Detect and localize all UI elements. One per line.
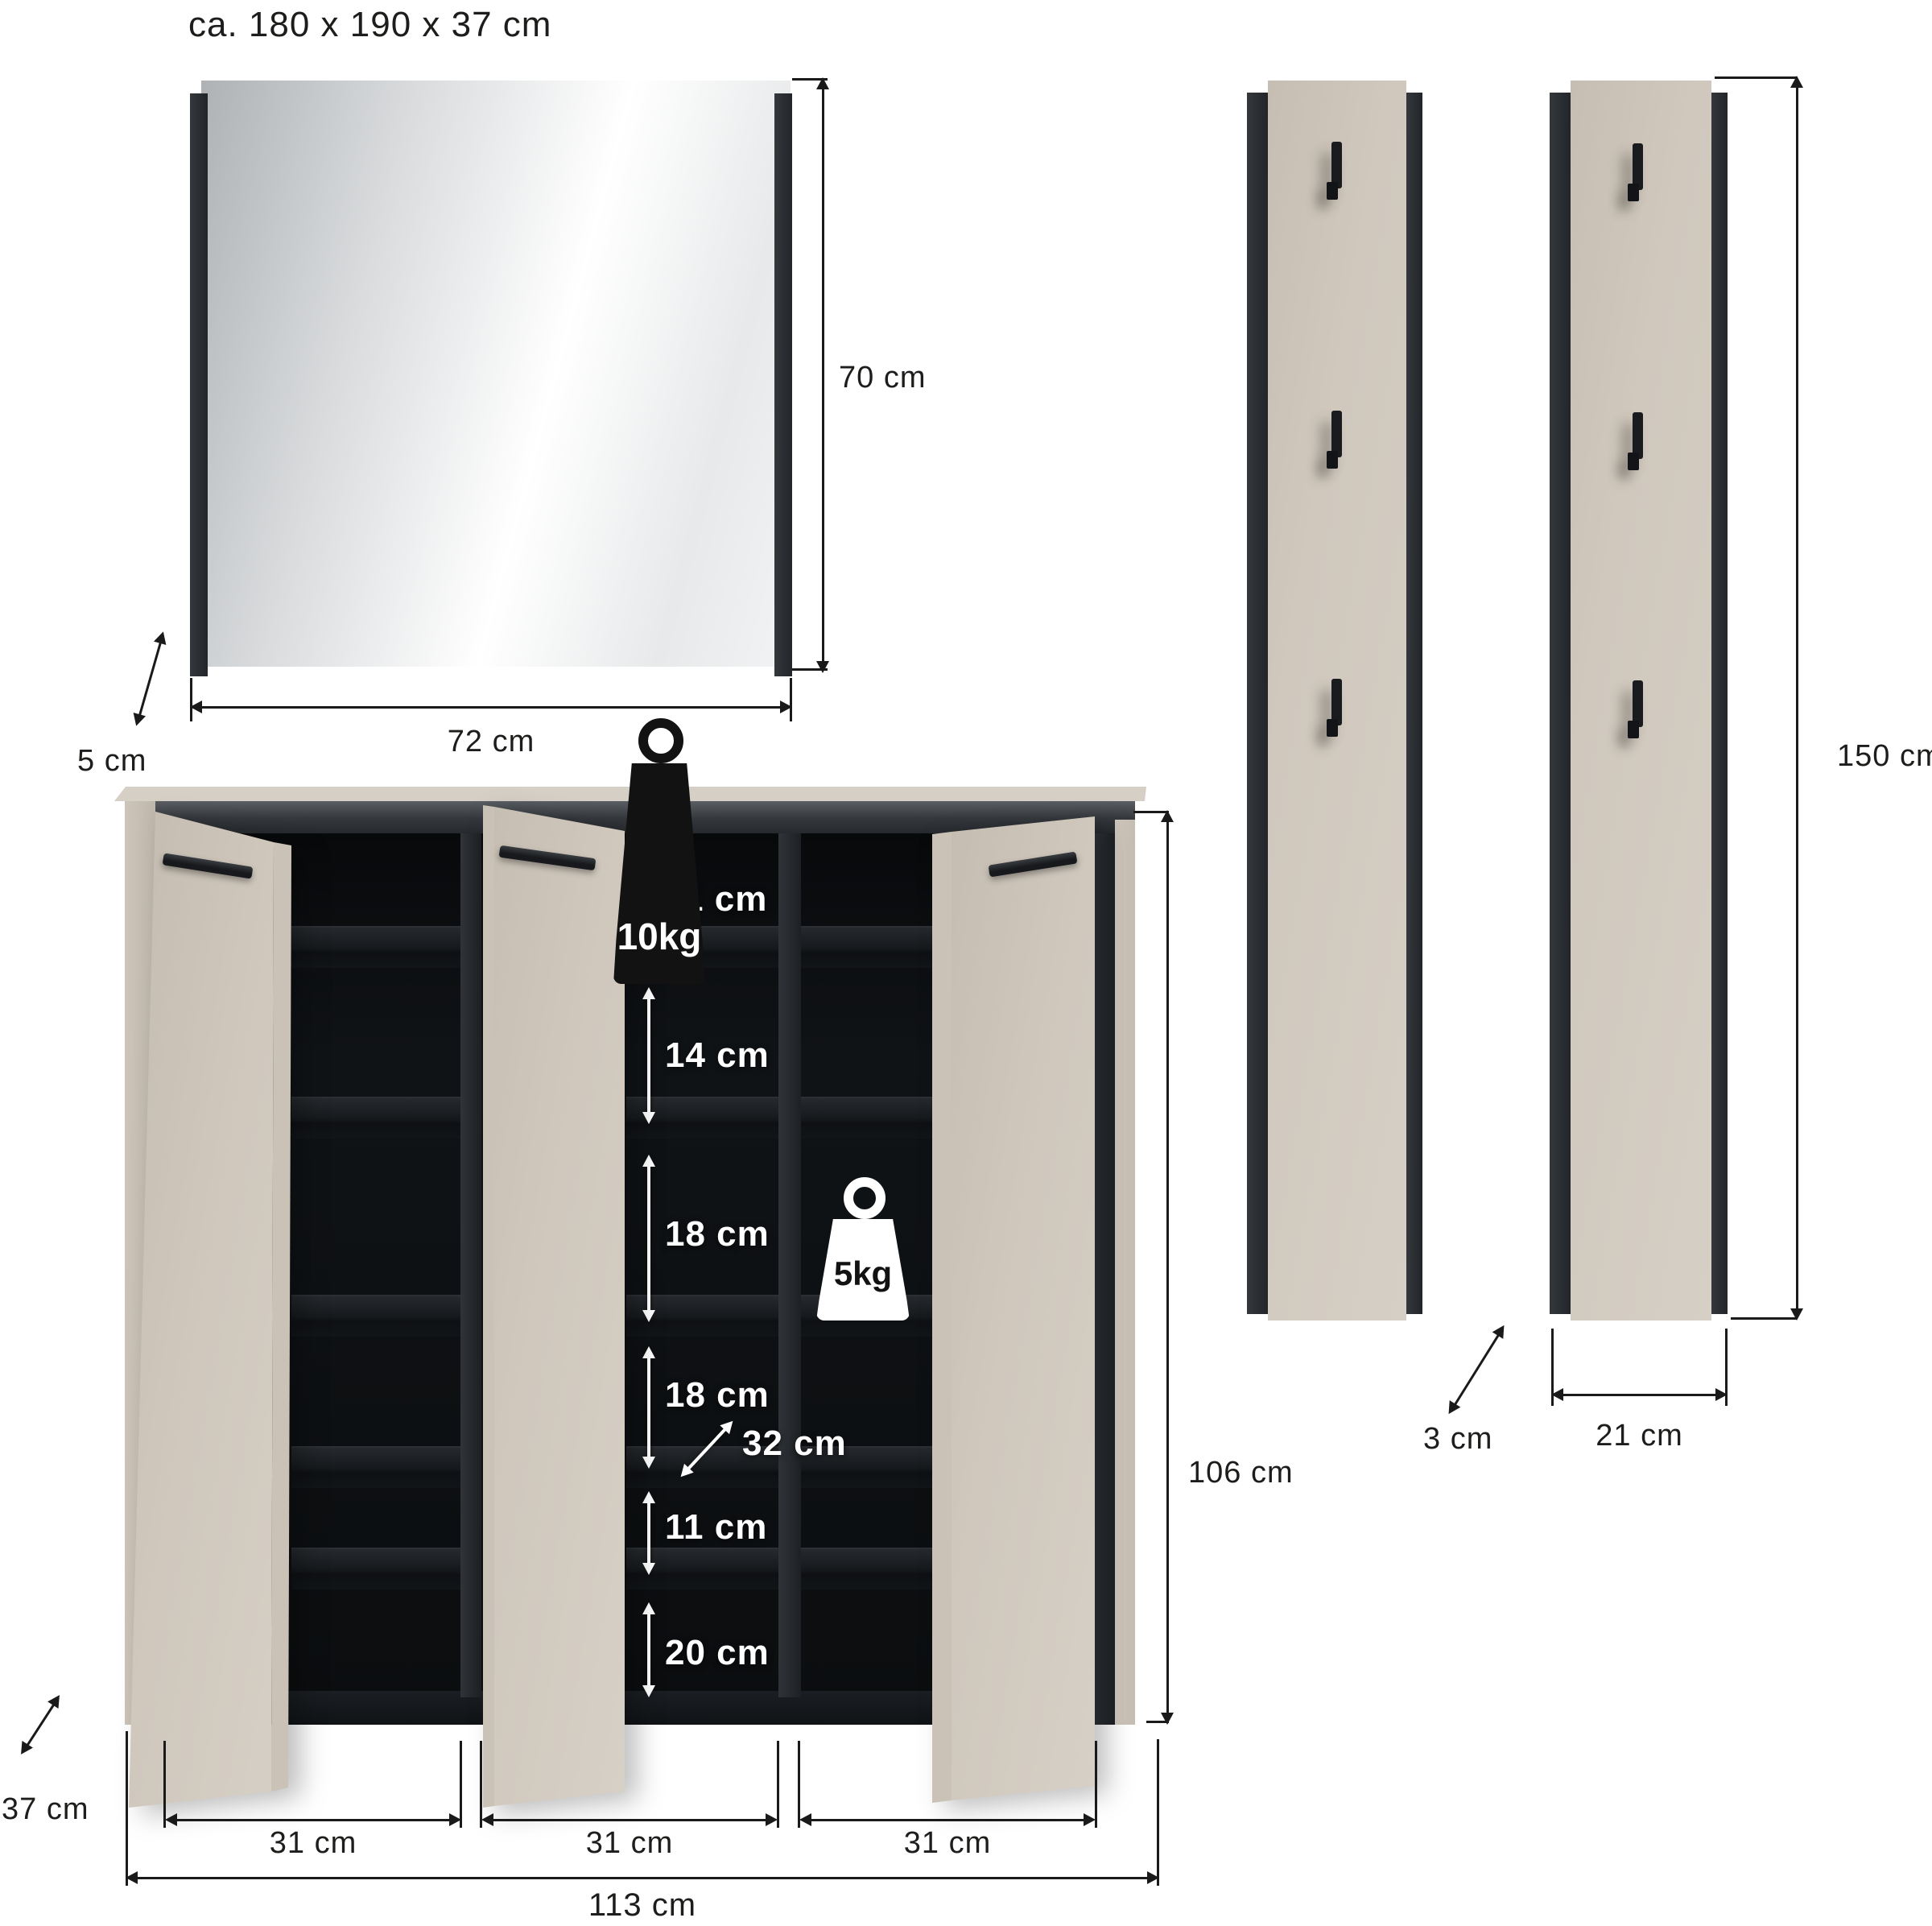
door-width-label: 31 cm [165, 1826, 461, 1861]
compartment-height-label: 18 cm [665, 1375, 770, 1416]
product-dimension-diagram: ca. 180 x 190 x 37 cm 70 cm 72 cm 5 cm 5 [0, 0, 1932, 1926]
door-width-label: 31 cm [481, 1826, 778, 1861]
cabinet-height-dimension-arrow [1161, 810, 1174, 1725]
compartment-height-arrow [642, 987, 655, 1124]
coat-hook-icon [1325, 411, 1346, 475]
shelf [291, 1097, 460, 1139]
coat-hook-icon [1626, 412, 1647, 477]
dimension-tick [190, 678, 192, 721]
coat-hook-icon [1626, 680, 1647, 745]
rack-panel-strip [1711, 93, 1728, 1314]
mirror-glass [201, 81, 791, 667]
mirror-side-strip-left [190, 93, 208, 676]
inner-depth-label: 32 cm [742, 1424, 847, 1464]
dimension-tick [790, 678, 792, 721]
compartment-height-arrow [642, 1602, 655, 1697]
door-width-label: 31 cm [799, 1826, 1096, 1861]
cabinet-depth-dimension-arrow [15, 1692, 64, 1759]
cabinet-door-1 [125, 805, 295, 1812]
compartment-height-label: 14 cm [665, 1035, 770, 1076]
mirror-depth-dimension-arrow [130, 630, 169, 728]
mirror-width-dimension-arrow [190, 701, 792, 713]
compartment-height-label: 20 cm [665, 1633, 770, 1673]
cabinet-right-side-panel [1115, 820, 1135, 1725]
weight-5kg-icon: 5kg [816, 1177, 913, 1322]
rack-height-label: 150 cm [1837, 739, 1932, 774]
dimension-tick [1731, 1317, 1797, 1320]
dimension-tick [1157, 1739, 1159, 1886]
mirror-side-strip-right [774, 93, 792, 676]
rack-width-dimension-arrow [1551, 1388, 1728, 1401]
rack-depth-dimension-arrow [1443, 1322, 1509, 1418]
shelf [291, 1446, 460, 1488]
compartment-height-label: 18 cm [665, 1214, 770, 1254]
shelf-load-label: 5kg [816, 1254, 910, 1293]
shelf [291, 1548, 460, 1589]
rack-width-label: 21 cm [1551, 1419, 1728, 1453]
cabinet-door-2 [456, 799, 626, 1810]
page-title: ca. 180 x 190 x 37 cm [188, 5, 551, 45]
rack-panel-strip [1550, 93, 1571, 1314]
rack-depth-label: 3 cm [1423, 1422, 1492, 1457]
cabinet-divider [778, 833, 801, 1697]
mirror-height-dimension-arrow [816, 77, 829, 673]
shelf [291, 1295, 460, 1337]
weight-10kg-icon: 10kg [612, 718, 708, 986]
coat-hook-icon [1626, 143, 1647, 208]
cabinet-width-label: 113 cm [126, 1887, 1159, 1924]
mirror-depth-label: 5 cm [77, 744, 147, 779]
cabinet-depth-label: 37 cm [2, 1792, 89, 1827]
cabinet-door-3 [929, 812, 1098, 1810]
door-width-dimension-arrow [165, 1813, 461, 1826]
door-width-dimension-arrow [481, 1813, 778, 1826]
cabinet-height-label: 106 cm [1188, 1456, 1294, 1490]
dimension-tick [1715, 76, 1797, 79]
compartment-height-arrow [642, 1491, 655, 1575]
door-width-dimension-arrow [799, 1813, 1096, 1826]
mirror-height-label: 70 cm [839, 361, 926, 395]
rack-height-dimension-arrow [1790, 76, 1803, 1321]
compartment-height-arrow [642, 1346, 655, 1469]
rack-panel-strip [1406, 93, 1422, 1314]
cabinet-width-dimension-arrow [126, 1871, 1159, 1884]
coat-hook-icon [1325, 679, 1346, 743]
compartment-height-label: 11 cm [665, 1507, 767, 1548]
rack-panel-strip [1247, 93, 1268, 1314]
compartment-height-arrow [642, 1155, 655, 1322]
top-load-label: 10kg [613, 915, 705, 958]
dimension-tick [126, 1731, 128, 1886]
coat-hook-icon [1325, 142, 1346, 206]
shelf [291, 926, 460, 968]
